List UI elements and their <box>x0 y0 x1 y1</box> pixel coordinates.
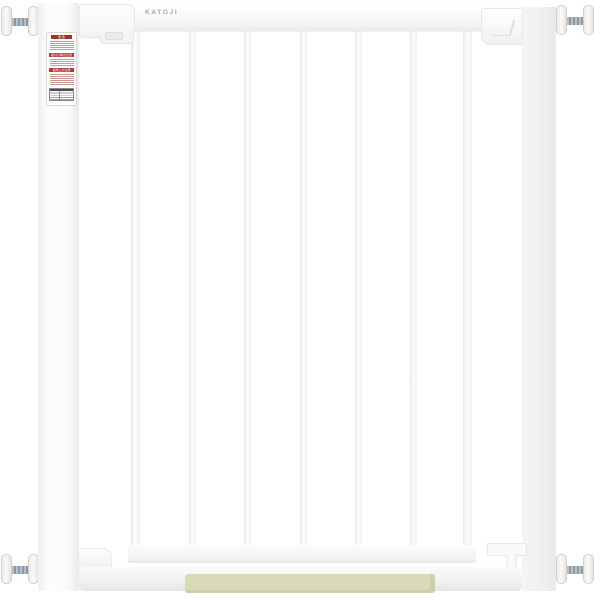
spindle-disc-icon <box>583 5 594 35</box>
gate-bar <box>463 24 472 552</box>
spindle-disc-icon <box>556 5 567 35</box>
warning-label: 警 告 取付け時の注意 使用上の注意 <box>46 32 77 106</box>
spindle-disc-icon <box>1 554 12 584</box>
pressure-spindle-bottom-left <box>1 554 43 586</box>
warning-text-block-1 <box>50 40 74 51</box>
gate-bottom-rail <box>128 545 476 561</box>
pressure-spindle-top-left <box>1 6 43 38</box>
gate-bar <box>189 24 196 552</box>
pressure-spindle-bottom-right <box>556 554 598 586</box>
brand-logo-text: KATOJI <box>145 9 178 16</box>
spec-table-divider <box>59 89 60 100</box>
spindle-disc-icon <box>556 554 567 584</box>
gate-post-right <box>522 7 556 591</box>
pressure-spindle-top-right <box>556 5 598 37</box>
gate-bar <box>355 24 362 552</box>
gate-bar <box>410 24 417 552</box>
product-image-baby-gate: 警 告 取付け時の注意 使用上の注意 KATOJI <box>0 0 600 600</box>
spindle-disc-icon <box>583 554 594 584</box>
warning-header-2: 取付け時の注意 <box>49 53 74 57</box>
warning-header-3: 使用上の注意 <box>49 68 74 72</box>
latch-release-button <box>105 32 123 40</box>
gate-bar <box>244 24 251 552</box>
step-over-pad <box>185 574 435 593</box>
warning-header-1: 警 告 <box>51 35 72 39</box>
gate-bar <box>131 24 140 552</box>
warning-text-block-2 <box>50 58 74 67</box>
spec-table <box>49 88 74 101</box>
gate-bar <box>300 24 307 552</box>
warning-text-block-3 <box>50 73 74 86</box>
spindle-disc-icon <box>1 6 12 36</box>
spec-table-header-row <box>50 89 73 91</box>
